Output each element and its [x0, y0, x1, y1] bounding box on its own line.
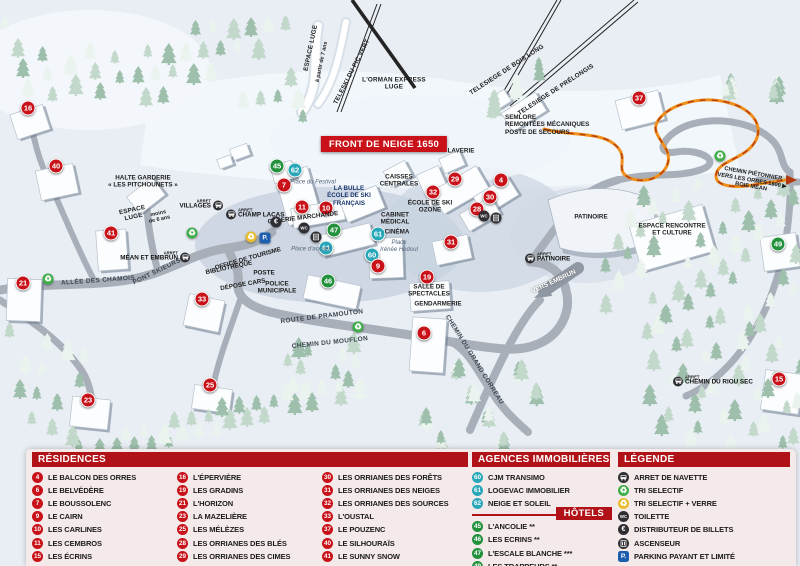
legend-number-badge: 23 — [177, 511, 188, 522]
legend-number-badge: 47 — [472, 548, 483, 559]
legend-number-badge: 4 — [32, 472, 43, 483]
legend-number-badge: 49 — [472, 561, 483, 566]
legend-euro-icon: € — [618, 524, 629, 535]
legend-item: 10LES CARLINES — [32, 523, 177, 536]
legende-rows: ARRET DE NAVETTE♻TRI SELECTIF♻TRI SELECT… — [618, 467, 790, 563]
residences-columns: 4LE BALCON DES ORRES6LE BELVÉDÈRE7LE BOU… — [32, 467, 468, 563]
legend-number-badge: 21 — [177, 498, 188, 509]
legend-item-label: ARRET DE NAVETTE — [634, 473, 707, 482]
legend-item: 41LE SUNNY SNOW — [322, 550, 467, 563]
legend-item-label: LES GRADINS — [193, 486, 243, 495]
legend-item-label: LES CARLINES — [48, 525, 102, 534]
legend-item-label: LES TRAPPEURS ** — [488, 562, 557, 566]
legend-item: 23LA MAZELIÈRE — [177, 510, 322, 523]
hotels-rows: 45L'ANCOLIE **46LES ECRINS **47L'ESCALE … — [472, 519, 610, 566]
legend-number-badge: 7 — [32, 498, 43, 509]
legend-item-label: DISTRIBUTEUR DE BILLETS — [634, 525, 733, 534]
legend-number-badge: 60 — [472, 472, 483, 483]
legend-item-label: PARKING PAYANT ET LIMITÉ — [634, 552, 735, 561]
legend-number-badge: 45 — [472, 521, 483, 532]
legend-item: 21L'HORIZON — [177, 497, 322, 510]
legend-item: ARRET DE NAVETTE — [618, 471, 790, 484]
legend-item-label: LE CAIRN — [48, 512, 83, 521]
legend-item: 31LES ORRIANES DES NEIGES — [322, 484, 467, 497]
legend-number-badge: 16 — [177, 472, 188, 483]
legend-item-label: TRI SELECTIF — [634, 486, 683, 495]
residences-col-2: 16L'ÉPERVIÈRE19LES GRADINS21L'HORIZON23L… — [177, 471, 322, 563]
legend-item-label: LES CEMBROS — [48, 539, 102, 548]
legend-wc-icon: WC — [618, 511, 629, 522]
legend-item: WCTOILETTE — [618, 510, 790, 523]
legend-item-label: ASCENSEUR — [634, 539, 680, 548]
legend-number-badge: 11 — [32, 538, 43, 549]
residences-block: RÉSIDENCES 4LE BALCON DES ORRES6LE BELVÉ… — [32, 452, 468, 563]
legend-item: 45L'ANCOLIE ** — [472, 520, 610, 533]
legend-parking-icon: P. — [618, 551, 629, 562]
legend-number-badge: 9 — [32, 511, 43, 522]
hotels-divider: HÔTELS — [472, 514, 610, 516]
legend-number-badge: 32 — [322, 498, 333, 509]
legend-item-label: LES ORRIANES DES BLÉS — [193, 539, 287, 548]
legend-item-label: LE POUZENC — [338, 525, 385, 534]
legend-item-label: L'HORIZON — [193, 499, 233, 508]
legend-item: 19LES GRADINS — [177, 484, 322, 497]
legend-item-label: LE SUNNY SNOW — [338, 552, 400, 561]
legend-item-label: NEIGE ET SOLEIL — [488, 499, 551, 508]
legend-item-label: LE BOUSSOLENC — [48, 499, 111, 508]
legend-item-label: LE SILHOURAÏS — [338, 539, 395, 548]
legend-number-badge: 41 — [322, 551, 333, 562]
legend-number-badge: 61 — [472, 485, 483, 496]
legend-item-label: LES ORRIANES DES SOURCES — [338, 499, 449, 508]
legend-number-badge: 40 — [322, 538, 333, 549]
legend-number-badge: 29 — [177, 551, 188, 562]
legend-recycle-yellow-icon: ♻ — [618, 498, 629, 509]
legend-item-label: LES MÉLÈZES — [193, 525, 244, 534]
legend-bus-icon — [618, 472, 629, 483]
residences-col-3: 30LES ORRIANES DES FORÊTS31LES ORRIANES … — [322, 471, 467, 563]
legend-item: 25LES MÉLÈZES — [177, 523, 322, 536]
agencies-rows: 60CJM TRANSIMO61LOGEVAC IMMOBILIER62NEIG… — [472, 467, 610, 510]
legend-item: 11LES CEMBROS — [32, 536, 177, 549]
legend-item: ♻TRI SELECTIF + VERRE — [618, 497, 790, 510]
legend-item-label: L'ÉPERVIÈRE — [193, 473, 241, 482]
legend-item: 40LE SILHOURAÏS — [322, 536, 467, 549]
legend-number-badge: 33 — [322, 511, 333, 522]
legend-item: P.PARKING PAYANT ET LIMITÉ — [618, 550, 790, 563]
legend-item-label: TRI SELECTIF + VERRE — [634, 499, 717, 508]
legend-item-label: LOGEVAC IMMOBILIER — [488, 486, 570, 495]
legend-item: 60CJM TRANSIMO — [472, 471, 610, 484]
legend-item-label: LES ECRINS ** — [488, 535, 540, 544]
legend-item-label: LES ORRIANES DES CIMES — [193, 552, 290, 561]
legend-item: 4LE BALCON DES ORRES — [32, 471, 177, 484]
legend-item: €DISTRIBUTEUR DE BILLETS — [618, 523, 790, 536]
legende-block: LÉGENDE ARRET DE NAVETTE♻TRI SELECTIF♻TR… — [618, 452, 790, 563]
legende-header: LÉGENDE — [618, 452, 790, 467]
legend-number-badge: 37 — [322, 524, 333, 535]
residences-header: RÉSIDENCES — [32, 452, 468, 467]
legend-item: 16L'ÉPERVIÈRE — [177, 471, 322, 484]
legend-item: 61LOGEVAC IMMOBILIER — [472, 484, 610, 497]
legend-number-badge: 15 — [32, 551, 43, 562]
legend-number-badge: 19 — [177, 485, 188, 496]
legend-item: 15LES ÉCRINS — [32, 550, 177, 563]
legend-item-label: LE BALCON DES ORRES — [48, 473, 136, 482]
legend-item: 37LE POUZENC — [322, 523, 467, 536]
legend-item-label: LA MAZELIÈRE — [193, 512, 247, 521]
legend-item: ♻TRI SELECTIF — [618, 484, 790, 497]
legend-item: 28LES ORRIANES DES BLÉS — [177, 536, 322, 549]
legend-elevator-icon — [618, 538, 629, 549]
legend-item-label: LE BELVÉDÈRE — [48, 486, 104, 495]
legend-item-label: L'ANCOLIE ** — [488, 522, 535, 531]
legend-item-label: L'ESCALE BLANCHE *** — [488, 549, 572, 558]
agencies-header: AGENCES IMMOBILIÈRES — [472, 452, 610, 467]
legend-item-label: LES ORRIANES DES NEIGES — [338, 486, 440, 495]
legend-number-badge: 30 — [322, 472, 333, 483]
legend-item: 30LES ORRIANES DES FORÊTS — [322, 471, 467, 484]
legend-item: 7LE BOUSSOLENC — [32, 497, 177, 510]
legend-number-badge: 6 — [32, 485, 43, 496]
legend-number-badge: 10 — [32, 524, 43, 535]
legend-recycle-green-icon: ♻ — [618, 485, 629, 496]
legend-number-badge: 28 — [177, 538, 188, 549]
legend-item: 46LES ECRINS ** — [472, 533, 610, 546]
legend-number-badge: 62 — [472, 498, 483, 509]
resort-map-page: 1640412133232574562111047616160946192932… — [0, 0, 800, 566]
legend-item-label: CJM TRANSIMO — [488, 473, 545, 482]
legend-item-label: L'OUSTAL — [338, 512, 374, 521]
legend-number-badge: 25 — [177, 524, 188, 535]
legend-item-label: LES ORRIANES DES FORÊTS — [338, 473, 442, 482]
legend-item: 6LE BELVÉDÈRE — [32, 484, 177, 497]
legend-item-label: LES ÉCRINS — [48, 552, 92, 561]
residences-col-1: 4LE BALCON DES ORRES6LE BELVÉDÈRE7LE BOU… — [32, 471, 177, 563]
legend-item: 9LE CAIRN — [32, 510, 177, 523]
legend-item: 47L'ESCALE BLANCHE *** — [472, 546, 610, 559]
legend-number-badge: 46 — [472, 534, 483, 545]
legend-item: 29LES ORRIANES DES CIMES — [177, 550, 322, 563]
legend-item: 32LES ORRIANES DES SOURCES — [322, 497, 467, 510]
legend-item: 33L'OUSTAL — [322, 510, 467, 523]
hotels-header: HÔTELS — [556, 507, 612, 520]
legend-item: 49LES TRAPPEURS ** — [472, 560, 610, 566]
legend-panel: RÉSIDENCES 4LE BALCON DES ORRES6LE BELVÉ… — [26, 449, 796, 566]
legend-item-label: TOILETTE — [634, 512, 669, 521]
legend-item: ASCENSEUR — [618, 536, 790, 549]
legend-number-badge: 31 — [322, 485, 333, 496]
agencies-block: AGENCES IMMOBILIÈRES 60CJM TRANSIMO61LOG… — [472, 452, 610, 566]
